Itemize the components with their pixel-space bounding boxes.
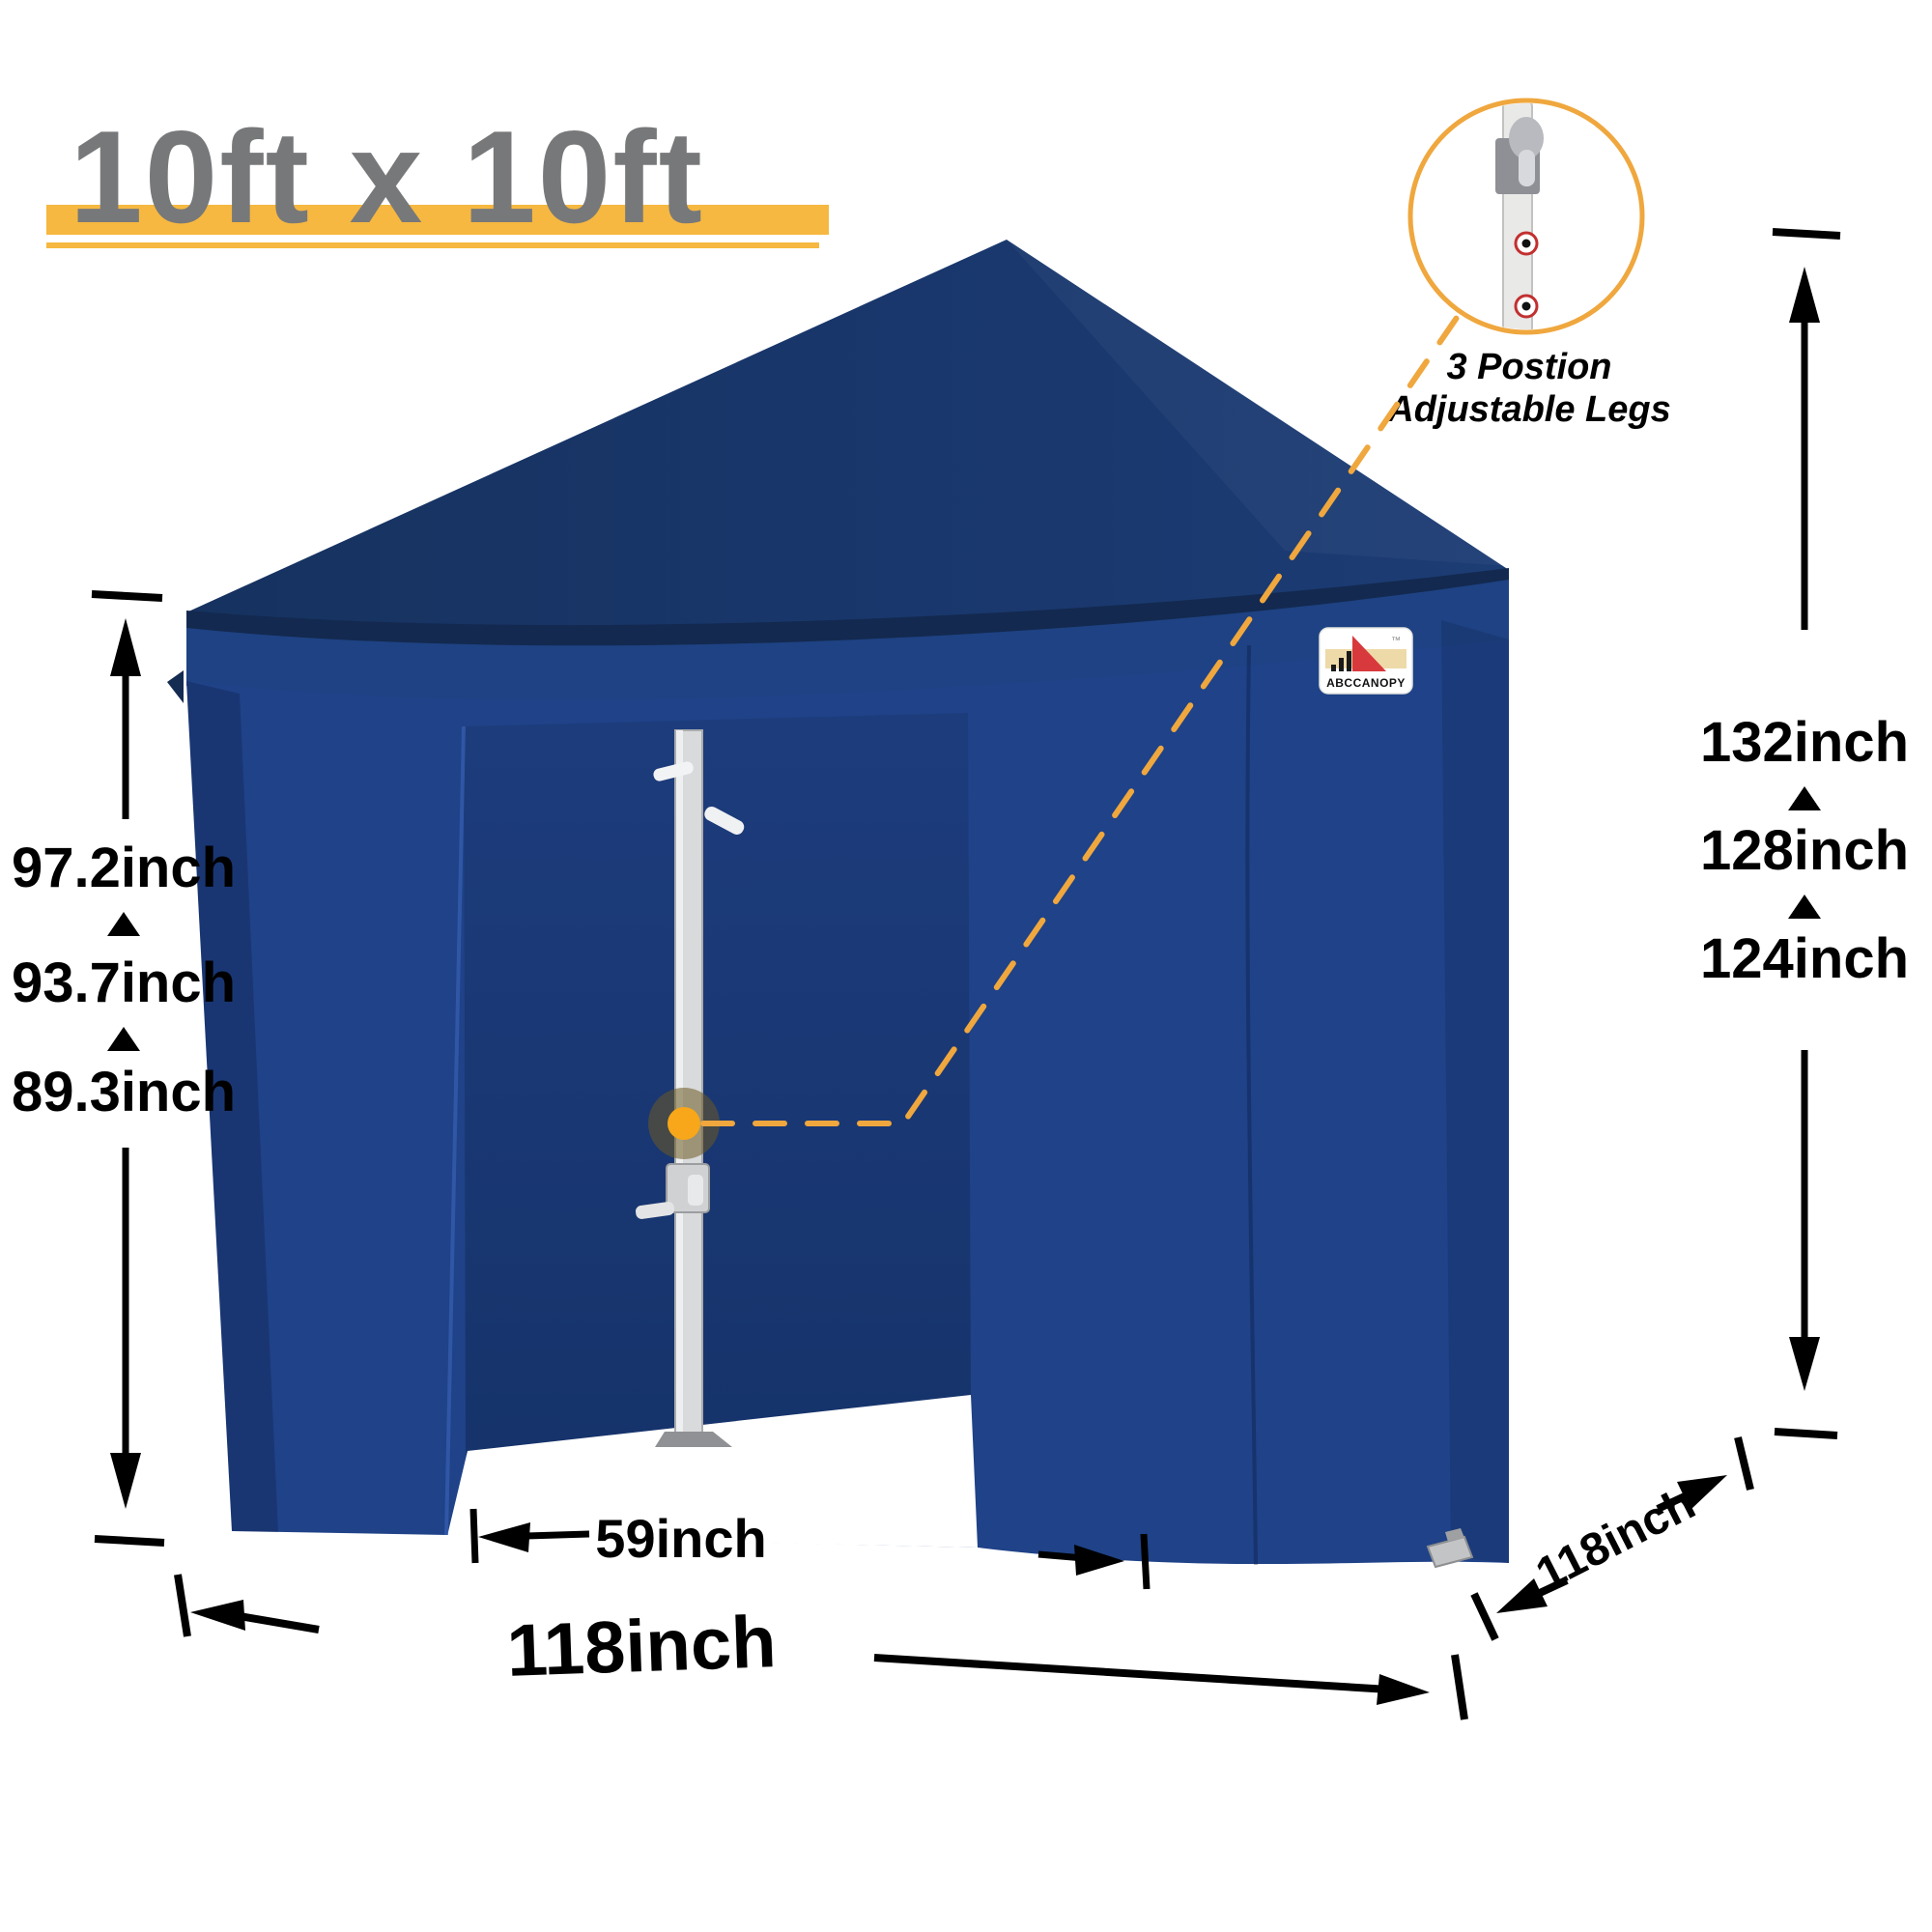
arrowhead-left (1496, 1578, 1548, 1613)
height-label-2: 93.7inch (12, 952, 236, 1014)
dimension-tick (95, 1539, 164, 1543)
marker-dot (668, 1107, 700, 1140)
triangle-up-icon (107, 1027, 140, 1051)
height-label-3: 89.3inch (12, 1061, 236, 1123)
dimension-tick (92, 594, 162, 598)
height-label-max: 132inch (1700, 711, 1909, 774)
dimension-side-depth: 118inch (1474, 1437, 1750, 1639)
height-label-mid: 128inch (1700, 819, 1909, 882)
dimension-tick (1773, 232, 1840, 236)
dimension-front-width: 118inch (178, 1575, 1464, 1719)
inset-caption-line1: 3 Postion (1446, 347, 1611, 387)
inset-caption-line2: Adjustable Legs (1386, 389, 1671, 430)
logo-bar-icon (1347, 651, 1351, 671)
leg-clamp-slot (1519, 150, 1535, 186)
arrowhead-left (190, 1600, 245, 1631)
triangle-up-icon (107, 912, 140, 936)
title-badge: 10ft x 10ft (46, 103, 829, 250)
dimension-line (240, 1616, 319, 1630)
arrowhead-down (1789, 1337, 1820, 1391)
arrowhead-right (1377, 1674, 1430, 1705)
dimension-tick (1474, 1594, 1495, 1639)
tent-left-flap (167, 670, 184, 703)
pole-clamp-lever (688, 1175, 703, 1206)
triangle-up-icon (1788, 786, 1821, 810)
door-pole-highlight (676, 730, 683, 1434)
height-label-min: 124inch (1700, 927, 1909, 990)
arrowhead-up (110, 618, 141, 676)
brand-logo: ™ ABCCANOPY (1320, 628, 1412, 694)
logo-bar-icon (1331, 665, 1336, 671)
dimension-tick (1144, 1534, 1147, 1589)
front-width-label: 118inch (505, 1601, 778, 1692)
canopy-tent: ™ ABCCANOPY (167, 240, 1509, 1567)
product-dimension-diagram: 10ft x 10ft (0, 0, 1932, 1932)
leg-adjust-pin (1522, 302, 1531, 311)
tent-right-edge-shading (1441, 620, 1509, 1563)
dimension-tick (1455, 1655, 1464, 1719)
height-label-1: 97.2inch (12, 837, 236, 899)
logo-brand-text: ABCCANOPY (1326, 676, 1406, 690)
arrowhead-down (110, 1453, 141, 1509)
dimension-line (526, 1534, 589, 1536)
dimension-tick (1738, 1437, 1750, 1490)
logo-bar-icon (1339, 658, 1344, 671)
leg-adjust-pin (1522, 240, 1531, 248)
canopy-tent-diagram: 10ft x 10ft (0, 0, 1932, 1932)
dimension-right-heights: 132inch 128inch 124inch (1700, 232, 1909, 1435)
dimension-tick (1775, 1432, 1837, 1435)
adjustable-leg-inset: 3 Postion Adjustable Legs (1386, 100, 1671, 430)
dimension-tick (178, 1575, 187, 1636)
page-title: 10ft x 10ft (70, 103, 704, 250)
arrowhead-up (1789, 267, 1820, 323)
logo-trademark: ™ (1391, 636, 1401, 646)
dimension-tick (473, 1509, 475, 1563)
dimension-line (874, 1658, 1389, 1690)
door-width-label: 59inch (595, 1508, 766, 1569)
triangle-up-icon (1788, 895, 1821, 919)
